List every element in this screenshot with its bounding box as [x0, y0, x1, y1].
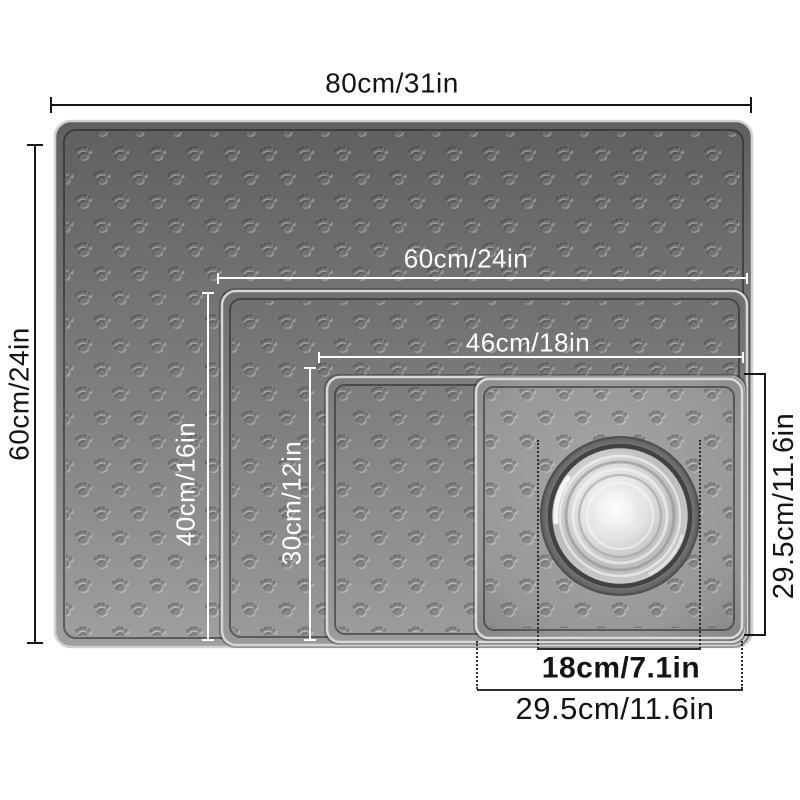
mat-large-width-label: 60cm/24in: [404, 245, 528, 274]
mat-medium-height-dimension-line: [309, 367, 311, 641]
overall-height-dimension-line: [34, 144, 36, 644]
mat-small-height-label: 29.5cm/11.6in: [769, 413, 800, 600]
mat-small-width-label: 29.5cm/11.6in: [516, 692, 715, 726]
mat-medium-width-label: 46cm/18in: [466, 329, 590, 358]
mat-large-height-label: 40cm/16in: [172, 422, 201, 546]
overall-width-dimension-line: [50, 104, 752, 106]
bowl-diameter-bracket-line: [537, 648, 701, 650]
mat-small-width-dotted-line-left: [476, 641, 478, 689]
mat-medium-height-label: 30cm/12in: [278, 441, 307, 565]
mat-large-width-dimension-line: [217, 277, 748, 279]
overall-height-label: 60cm/24in: [5, 327, 36, 461]
overall-width-label: 80cm/31in: [325, 69, 459, 100]
bowl-diameter-dotted-line-right: [699, 440, 701, 649]
mat-medium-width-dimension-line: [318, 356, 744, 358]
pet-bowl: [541, 437, 699, 595]
bowl-diameter-label: 18cm/7.1in: [542, 652, 700, 685]
product-dimension-diagram: 80cm/31in 60cm/24in 60cm/24in 40cm/16in …: [0, 0, 800, 800]
bowl-diameter-dotted-line-left: [537, 440, 539, 649]
mat-large-height-dimension-line: [207, 292, 209, 641]
mat-small-width-dotted-line-right: [741, 641, 743, 689]
mat-small-height-dimension-line: [764, 373, 766, 636]
